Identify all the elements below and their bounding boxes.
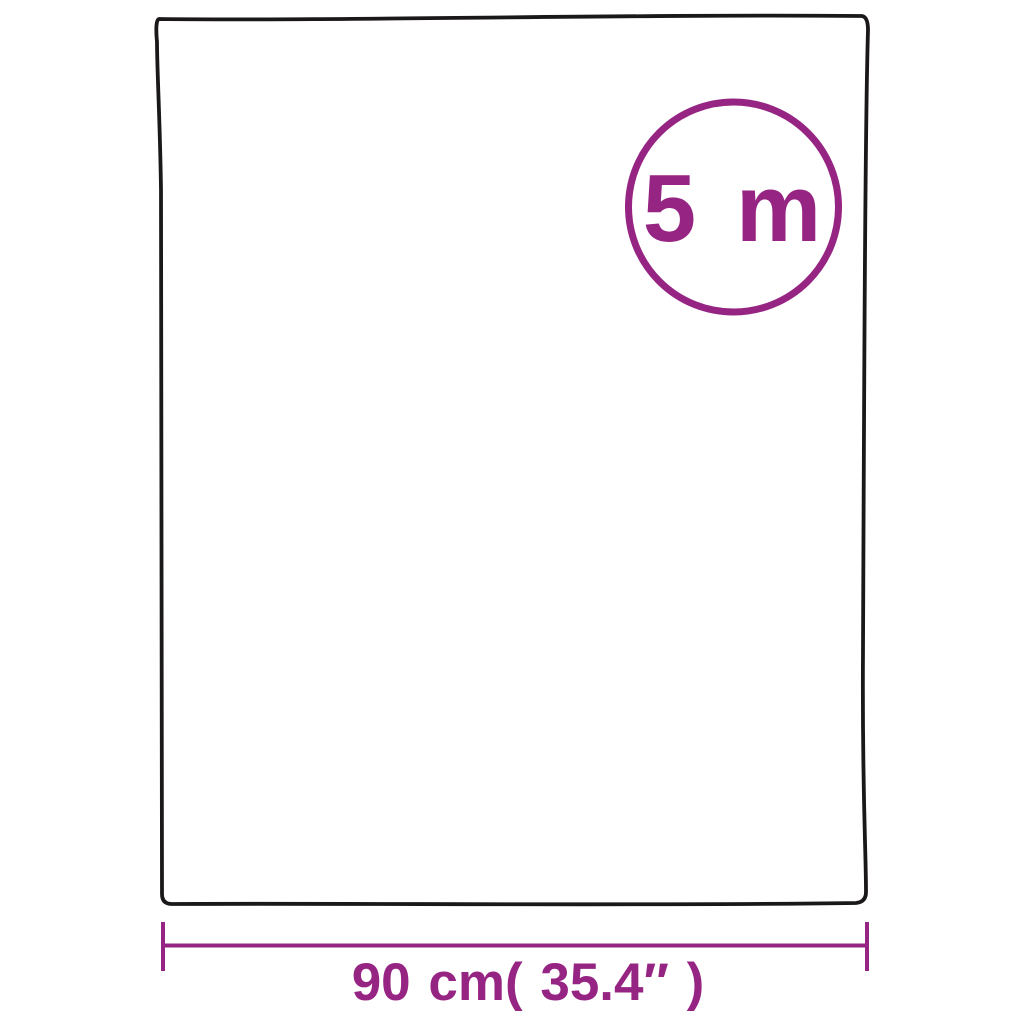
width-dimension-label: 90 cm( 35.4″ ) <box>352 953 705 1012</box>
roll-length-badge: 5 m <box>629 102 839 312</box>
width-dimension: 90 cm( 35.4″ ) <box>163 922 867 1012</box>
dimension-diagram-canvas: 5 m 90 cm( 35.4″ ) <box>0 0 1024 1024</box>
roll-length-badge-label: 5 m <box>643 155 821 262</box>
product-dimension-diagram: 5 m 90 cm( 35.4″ ) <box>0 0 1024 1024</box>
